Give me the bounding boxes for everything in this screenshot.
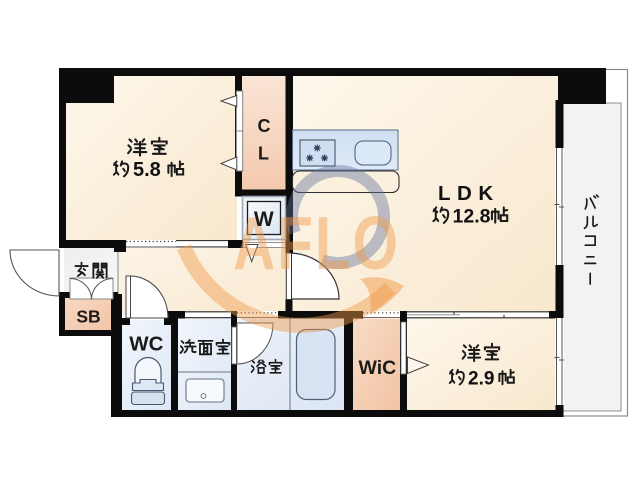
svg-text:5.8: 5.8	[133, 159, 161, 181]
svg-text:12.8: 12.8	[453, 206, 491, 228]
svg-text:L: L	[258, 144, 269, 164]
svg-text:LDK: LDK	[438, 182, 500, 205]
svg-text:C: C	[258, 116, 271, 136]
svg-text:2.9: 2.9	[468, 369, 494, 390]
svg-text:WiC: WiC	[359, 357, 397, 379]
svg-text:WC: WC	[129, 333, 163, 356]
svg-text:W: W	[254, 208, 274, 231]
svg-text:SB: SB	[76, 307, 100, 327]
